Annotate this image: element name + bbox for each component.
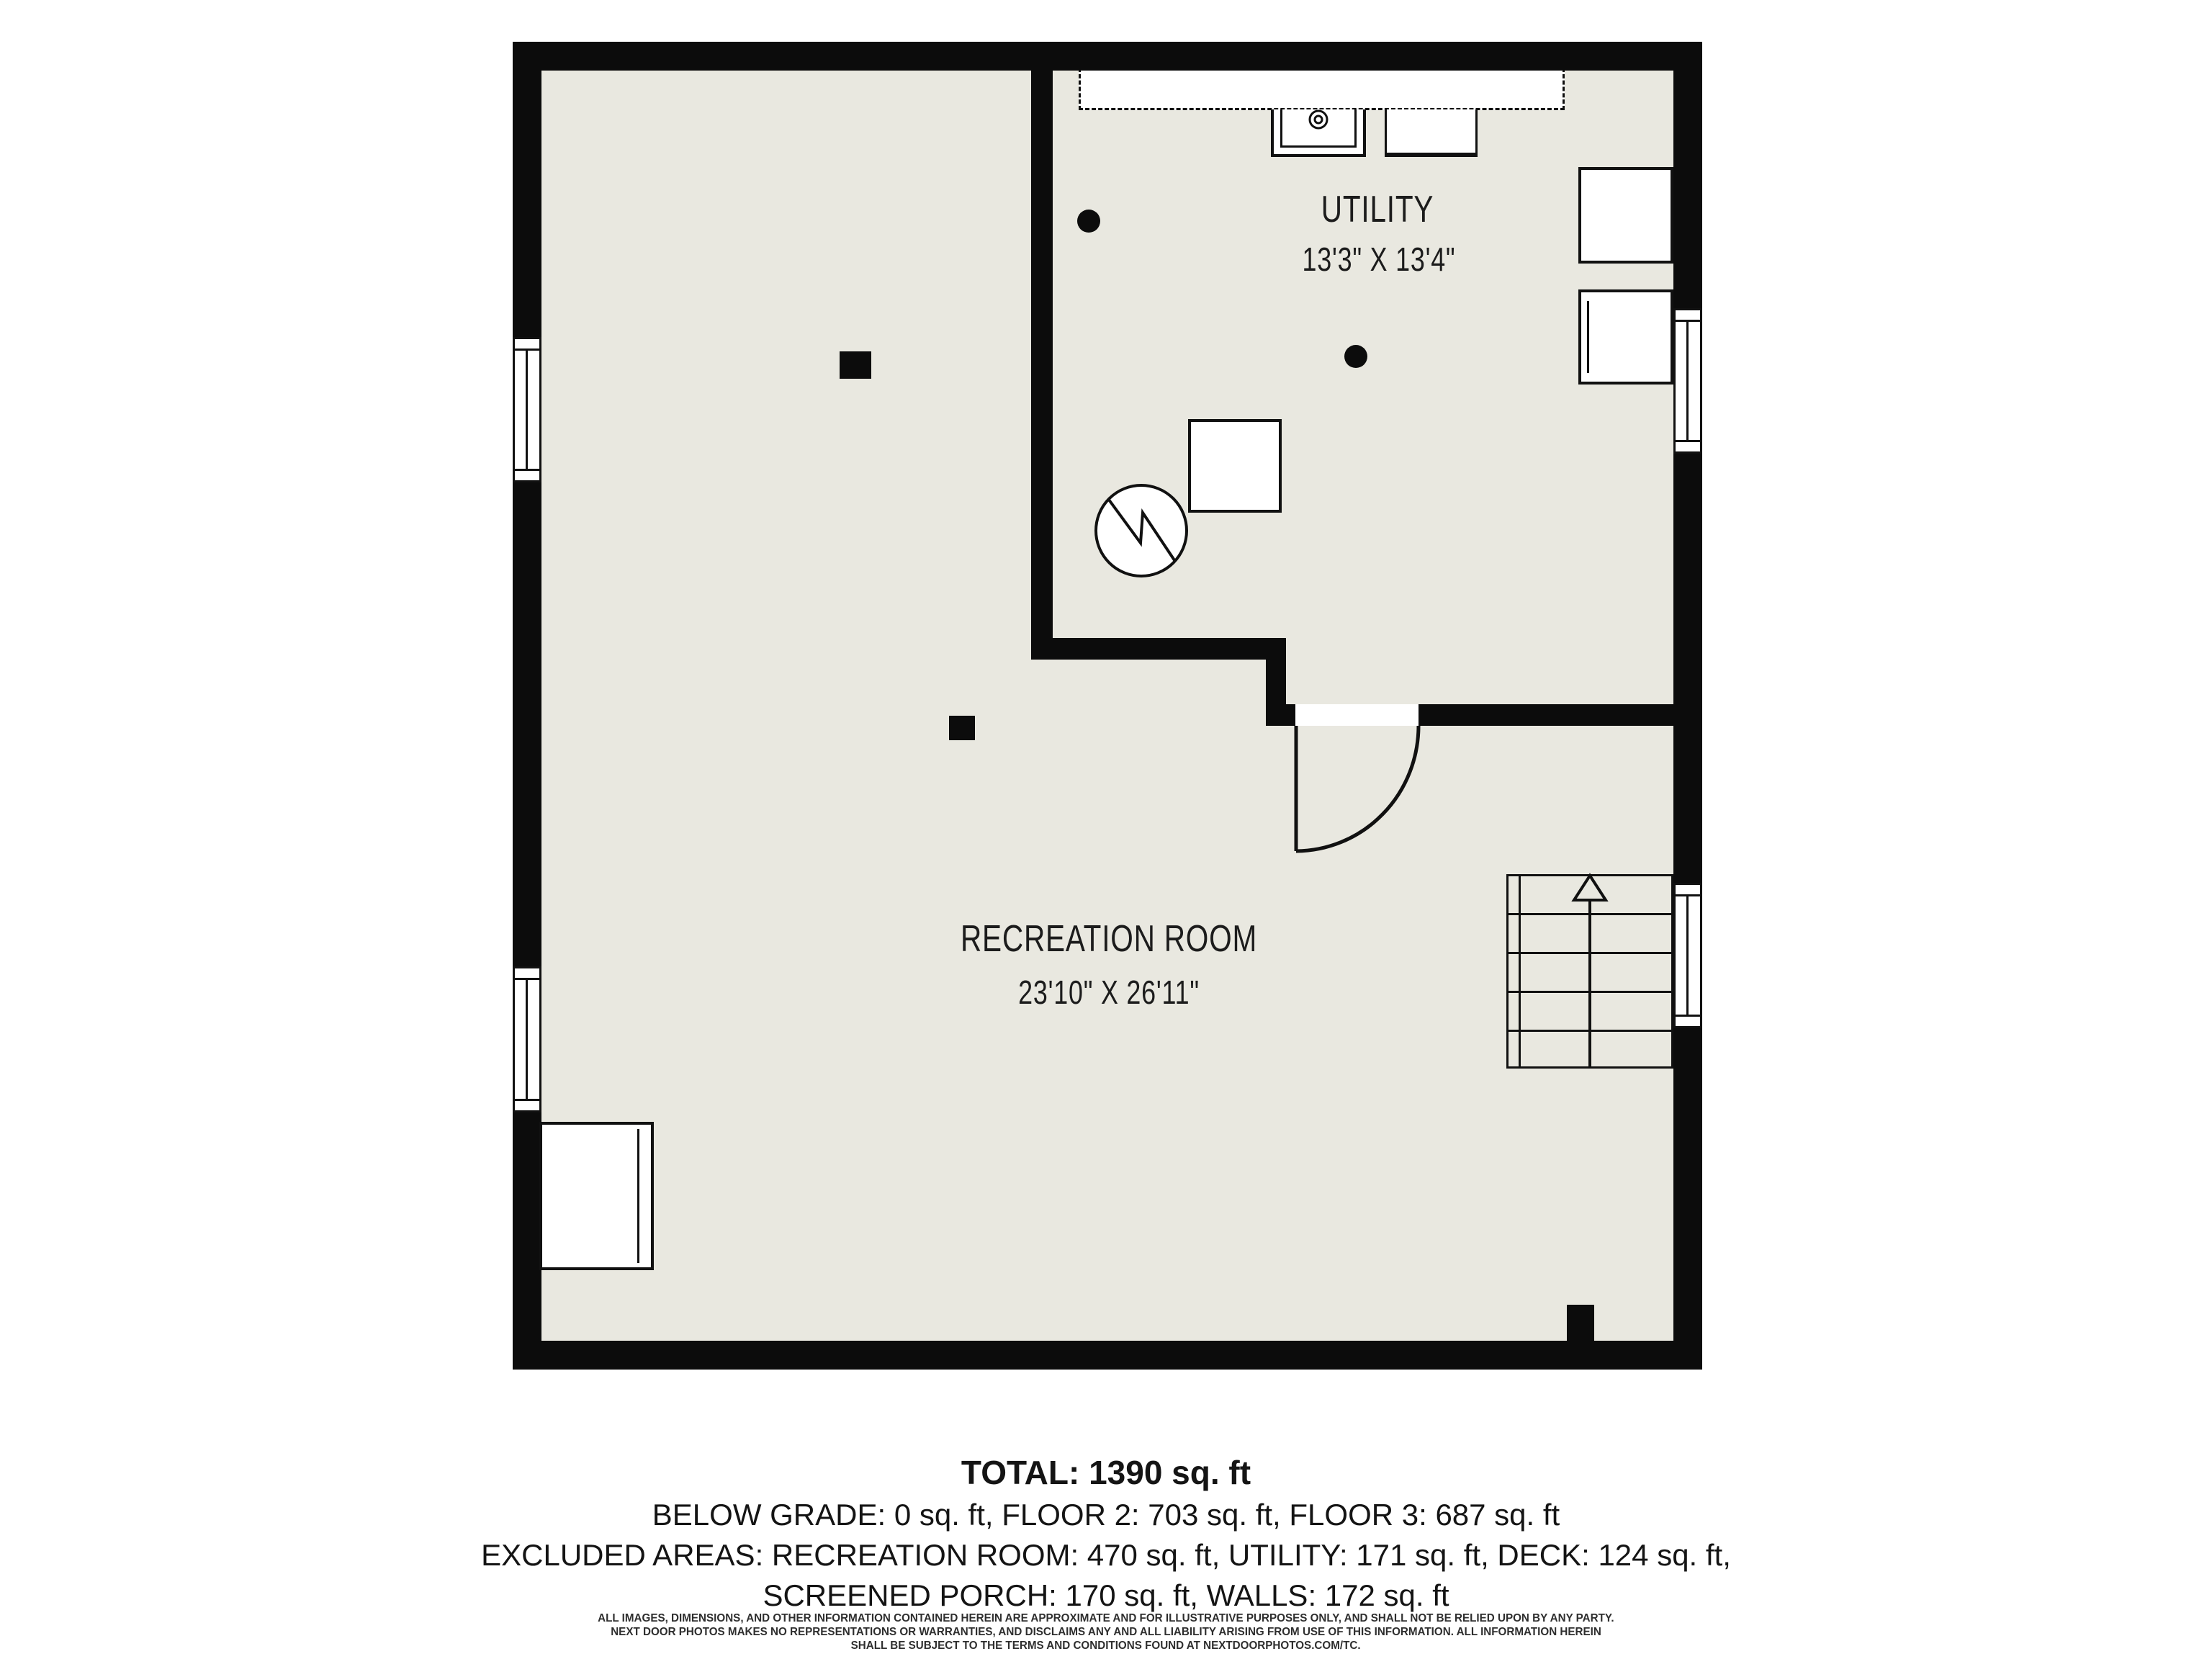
summary-floors: BELOW GRADE: 0 sq. ft, FLOOR 2: 703 sq. …: [0, 1498, 2212, 1532]
summary-excluded: EXCLUDED AREAS: RECREATION ROOM: 470 sq.…: [0, 1538, 2212, 1573]
disclaimer-text-2: NEXT DOOR PHOTOS MAKES NO REPRESENTATION…: [611, 1625, 1601, 1639]
recreation-room-dims: 23'10" X 26'11": [993, 973, 1226, 1012]
door-swing-arc: [1296, 726, 1419, 851]
disclaimer-line-1: ALL IMAGES, DIMENSIONS, AND OTHER INFORM…: [0, 1611, 2212, 1625]
utility-room-dims: 13'3" X 13'4": [1281, 240, 1478, 279]
round-column-1: [1077, 210, 1100, 233]
disclaimer-line-2: NEXT DOOR PHOTOS MAKES NO REPRESENTATION…: [0, 1625, 2212, 1639]
recreation-room-label-text: RECREATION ROOM: [961, 917, 1257, 961]
utility-room-label-text: UTILITY: [1321, 188, 1434, 231]
disclaimer-line-3: SHALL BE SUBJECT TO THE TERMS AND CONDIT…: [0, 1639, 2212, 1653]
faucet-icon-inner: [1315, 116, 1322, 123]
utility-room-label: UTILITY: [1305, 188, 1450, 231]
utility-room-dims-text: 13'3" X 13'4": [1303, 240, 1456, 279]
disclaimer-text-3: SHALL BE SUBJECT TO THE TERMS AND CONDIT…: [851, 1639, 1361, 1653]
summary-total: TOTAL: 1390 sq. ft: [0, 1453, 2212, 1492]
disclaimer-text-1: ALL IMAGES, DIMENSIONS, AND OTHER INFORM…: [598, 1611, 1614, 1625]
plan-symbols: [0, 0, 2212, 1659]
round-column-2: [1344, 345, 1367, 368]
floor-plan-page: UTILITY 13'3" X 13'4" RECREATION ROOM 23…: [0, 0, 2212, 1659]
summary-excluded-2: SCREENED PORCH: 170 sq. ft, WALLS: 172 s…: [0, 1578, 2212, 1613]
recreation-room-dims-text: 23'10" X 26'11": [1018, 973, 1200, 1012]
recreation-room-label: RECREATION ROOM: [919, 917, 1299, 961]
stair-up-arrow: [1574, 876, 1606, 900]
